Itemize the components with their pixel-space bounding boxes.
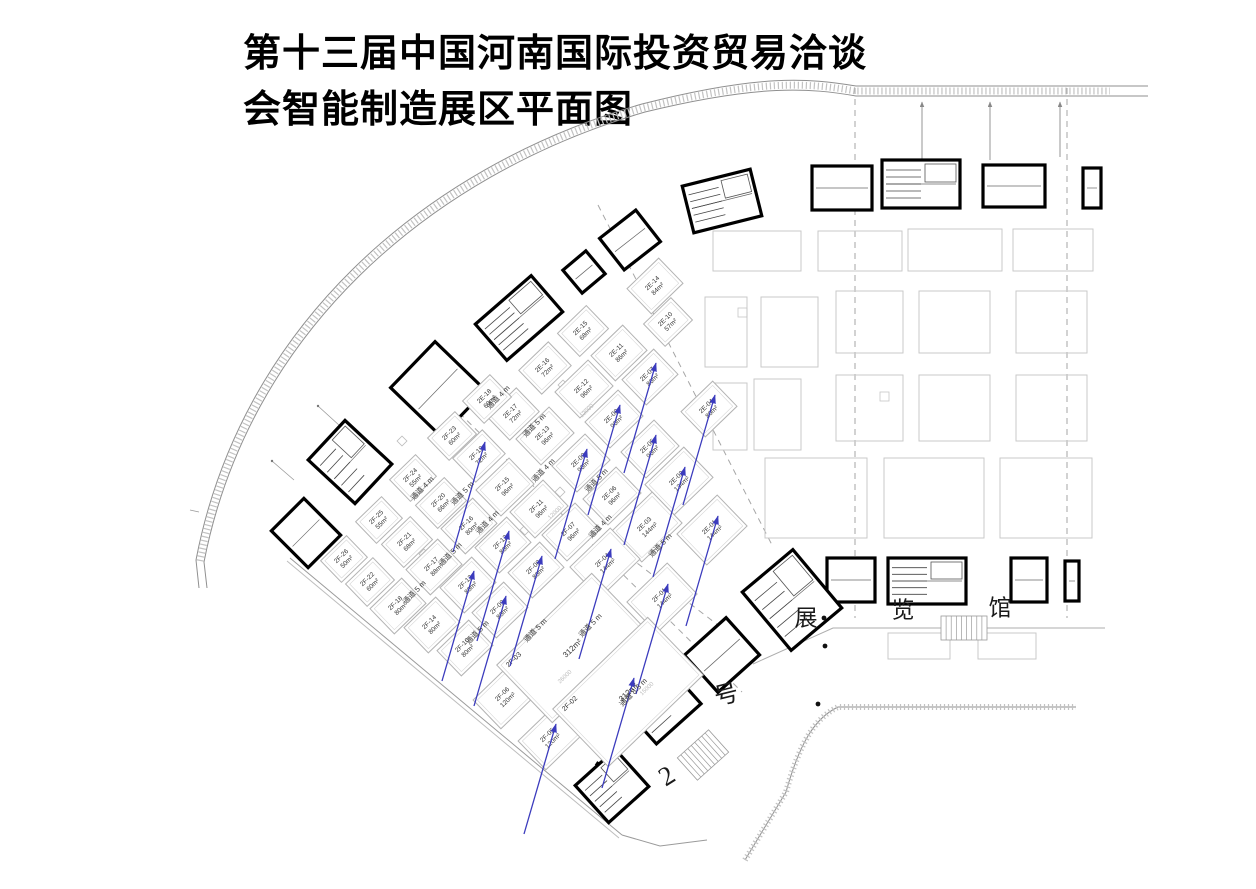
open-booth: [919, 375, 990, 441]
hall-name-char: 2: [653, 759, 680, 792]
booth-2E-01: 2E-01144m²: [677, 495, 747, 565]
open-booth: [908, 229, 1002, 271]
open-booth: [713, 231, 801, 271]
structural-core: [600, 210, 661, 270]
floor-plan-canvas: 2E-1484m²2E-1057m²2E-1568m²2E-1672m²2E-1…: [0, 0, 1256, 889]
open-booth: [761, 297, 818, 367]
open-booth: [754, 379, 801, 450]
open-booth: [818, 231, 902, 271]
stairs: [941, 616, 987, 640]
structural-core: [882, 160, 960, 208]
open-booth: [1016, 375, 1087, 441]
floor-plan-page: 第十三届中国河南国际投资贸易洽谈 会智能制造展区平面图 2E-1484m²2E-…: [0, 0, 1256, 889]
structural-core: [391, 342, 486, 437]
open-booth: [1000, 458, 1092, 538]
structural-core: [1011, 558, 1047, 602]
hall-name-char: 号: [712, 680, 742, 711]
structural-core: [812, 166, 872, 210]
column-dot: [816, 702, 821, 707]
open-booth: [919, 291, 990, 353]
open-booth: [884, 458, 984, 538]
hall-name-char: 览: [892, 597, 915, 622]
open-booth: [705, 297, 747, 367]
structural-core: [983, 165, 1045, 207]
hall-name-char: 展: [795, 605, 818, 630]
open-booth: [1013, 229, 1093, 271]
structural-core: [563, 251, 605, 293]
structural-core: [1083, 168, 1101, 208]
stairs: [677, 730, 728, 780]
column-dot: [823, 644, 828, 649]
hall-name-char: 馆: [989, 595, 1012, 620]
structural-core: [682, 169, 762, 233]
open-booth: [765, 458, 867, 538]
structural-core: [827, 558, 875, 602]
open-booth: [1016, 291, 1087, 353]
structural-core: [1065, 561, 1079, 601]
structural-core: [308, 420, 392, 503]
open-booth: [836, 291, 903, 353]
column-dot: [822, 616, 827, 621]
open-booth: [836, 375, 903, 441]
booth-2E-04: 2E-0480m²: [681, 381, 737, 437]
